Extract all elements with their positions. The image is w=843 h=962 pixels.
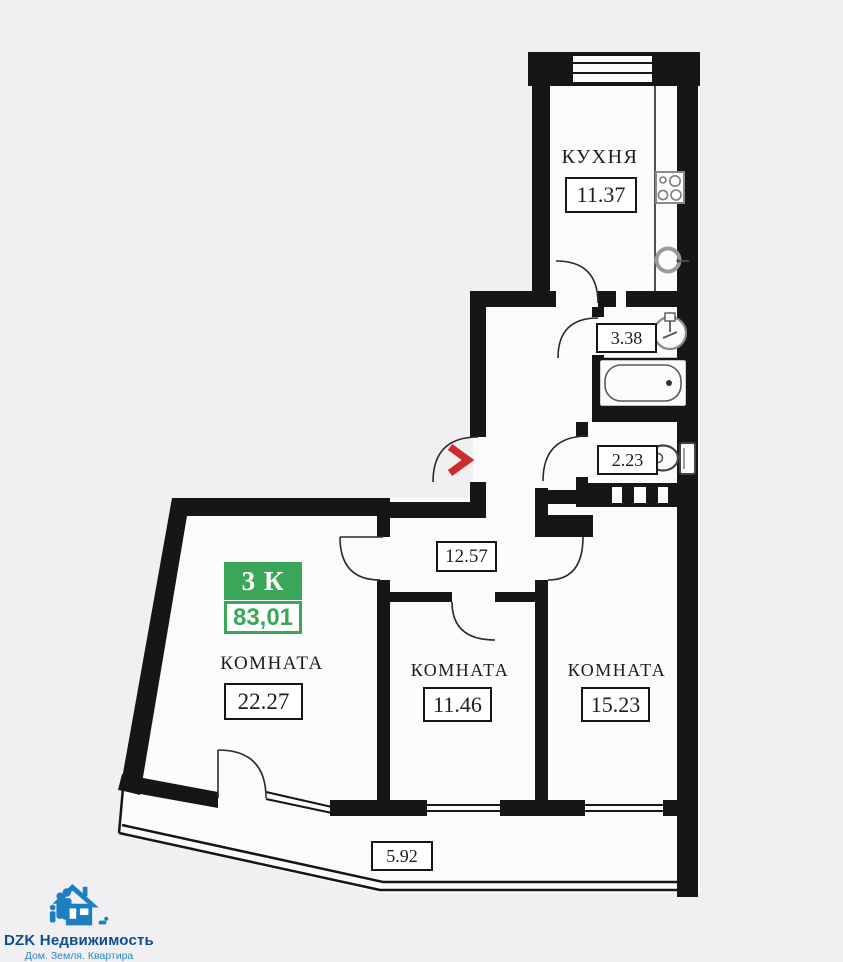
badge-rooms-count: 3 К — [224, 562, 302, 600]
bedroom-middle-label: КОМНАТА — [395, 660, 525, 681]
bedroom-right-window — [585, 800, 663, 816]
house-family-icon — [2, 884, 156, 931]
balcony-area: 5.92 — [371, 841, 433, 871]
kitchen-area: 11.37 — [565, 177, 637, 213]
vent-shaft — [588, 483, 678, 507]
logo-tagline: Дом. Земля. Квартира — [2, 950, 156, 962]
agency-logo: DZK Недвижимость Дом. Земля. Квартира — [2, 884, 156, 962]
bedroom-middle-area: 11.46 — [423, 687, 492, 722]
bathtub-icon — [599, 359, 687, 407]
living-room-area: 22.27 — [224, 683, 303, 720]
floor-plan-svg — [0, 0, 843, 960]
apartment-badge: 3 К 83,01 — [224, 562, 302, 634]
floor-plan-page: КУХНЯ 11.37 3.38 2.23 12.57 КОМНАТА 22.2… — [0, 0, 843, 960]
kitchen-label: КУХНЯ — [535, 146, 665, 169]
kitchen-window — [573, 56, 652, 82]
bedroom-right-area: 15.23 — [581, 687, 650, 722]
entry-chevron-icon — [450, 447, 468, 473]
toilet-area: 2.23 — [597, 445, 658, 475]
bathroom-area: 3.38 — [596, 323, 657, 353]
living-room-label: КОМНАТА — [207, 653, 337, 675]
logo-title: DZK Недвижимость — [2, 932, 156, 949]
hallway-area: 12.57 — [436, 541, 497, 572]
stove-icon — [656, 172, 684, 203]
bedroom-right-label: КОМНАТА — [552, 660, 682, 681]
bedroom-middle-window — [427, 800, 500, 816]
badge-total-area: 83,01 — [224, 601, 302, 634]
